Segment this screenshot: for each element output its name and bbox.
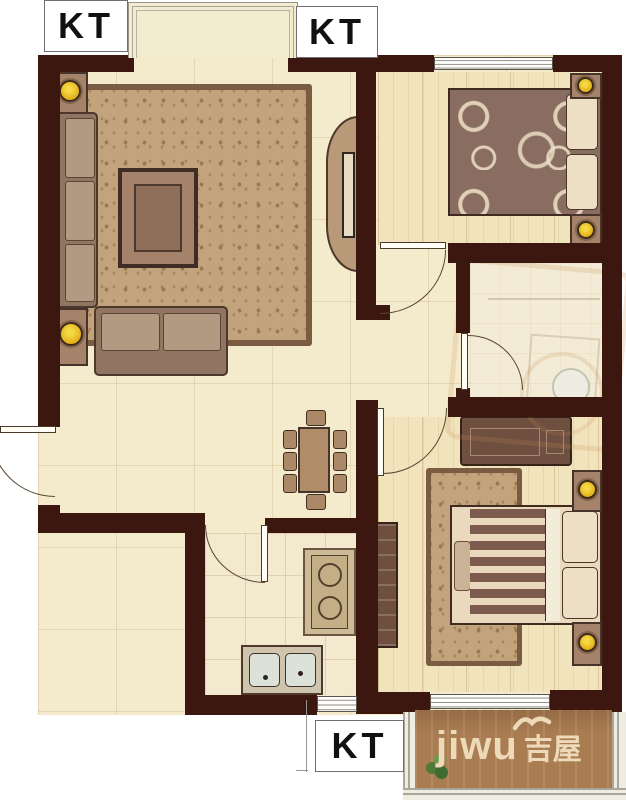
jiwu-watermark-latin: jiwu: [436, 724, 518, 769]
wall-kitchen-bottom: [185, 695, 317, 715]
jiwu-watermark: jiwu 吉屋: [436, 724, 582, 769]
dining-chair: [306, 410, 326, 426]
wall-bathroom-bottom: [448, 397, 622, 417]
wall-left: [38, 55, 60, 427]
lamp-icon: [577, 77, 594, 94]
loveseat-cushion: [163, 313, 221, 351]
dining-chair: [333, 452, 347, 471]
balcony-rail-right: [612, 712, 626, 788]
dining-chair: [333, 474, 347, 493]
loveseat-cushion: [101, 313, 160, 351]
dining-chair: [333, 430, 347, 449]
sofa-cushion: [65, 118, 95, 178]
pillow: [566, 154, 598, 210]
tv-icon: [342, 152, 355, 238]
kt-text: KT: [58, 8, 114, 44]
pillow: [562, 567, 598, 619]
entry-door-arc: [0, 432, 55, 497]
burner-icon: [318, 563, 342, 587]
wall-top-right: [553, 55, 622, 72]
faucet-icon: [298, 671, 303, 676]
wall-divider-lower: [356, 400, 378, 694]
kt-text: KT: [332, 728, 388, 764]
bed-duvet-striped: [470, 509, 546, 621]
dining-chair: [306, 494, 326, 510]
wall-kitchen-top: [265, 518, 356, 533]
burner-icon: [318, 596, 342, 620]
bed-bolster: [454, 541, 471, 591]
kt-label-bottom: KT: [315, 720, 404, 772]
lamp-icon: [59, 80, 81, 102]
sofa-cushion: [65, 244, 95, 302]
bed-fold: [546, 509, 560, 621]
kt-text: KT: [309, 14, 365, 50]
dining-chair: [283, 474, 297, 493]
wall-bedroom-top-bottom: [448, 243, 622, 263]
pillow: [562, 511, 598, 563]
wall-kitchen-left: [185, 513, 205, 715]
bay-window-frame: [136, 10, 290, 58]
dimension-tick: [296, 770, 308, 771]
dining-chair: [283, 452, 297, 471]
balcony-rail-bottom: [403, 788, 626, 800]
jiwu-watermark-cjk: 吉屋: [524, 726, 582, 768]
coffee-table-top: [134, 184, 182, 252]
sink-basin: [249, 653, 280, 687]
dimension-line: [306, 700, 307, 772]
kitchen-counter: [303, 548, 356, 636]
wall-right: [602, 55, 622, 712]
window-bedroom-bottom: [430, 694, 550, 709]
bay-window: [128, 2, 298, 58]
wall-divider-upper: [356, 55, 376, 320]
faucet-icon: [263, 675, 268, 680]
lamp-icon: [578, 480, 597, 499]
kitchen-sink-unit: [241, 645, 323, 695]
coffee-table: [118, 168, 198, 268]
balcony-rail-left: [403, 712, 415, 800]
sofa: [54, 112, 98, 308]
lamp-icon: [59, 322, 83, 346]
dining-table: [298, 427, 330, 493]
lamp-icon: [578, 633, 597, 652]
kt-label-top-center: KT: [296, 6, 378, 58]
bed-double: [448, 88, 602, 216]
wall-bathroom-left: [456, 243, 470, 333]
window-kitchen: [317, 696, 357, 712]
lamp-icon: [577, 221, 595, 239]
wall-top-left: [38, 55, 134, 72]
wall-living-bottom: [38, 513, 205, 533]
floor-plan: jiwu 吉屋 KT KT KT: [0, 0, 626, 800]
pillow: [566, 94, 598, 150]
kt-label-top-left: KT: [44, 0, 128, 52]
bed-double: [450, 505, 602, 625]
stamp-watermark-circle: [520, 352, 604, 436]
bathroom-door-leaf: [461, 333, 468, 390]
bedroom-top-door-leaf: [380, 242, 446, 249]
window-bedroom-top: [434, 57, 553, 70]
loveseat: [94, 306, 228, 376]
sofa-cushion: [65, 181, 95, 241]
sink-basin: [285, 653, 316, 687]
dining-chair: [283, 430, 297, 449]
